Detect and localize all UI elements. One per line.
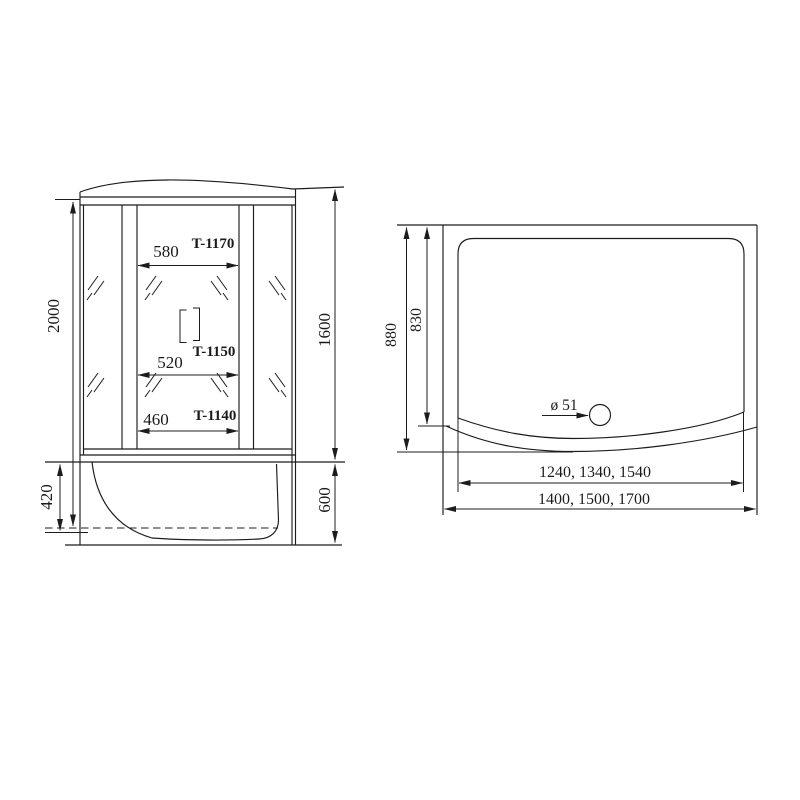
model-label-t1150: T-1150: [193, 344, 236, 360]
dim-inner-widths: 1240, 1340, 1540: [539, 464, 651, 481]
dim-door-width-t1140: 460: [143, 410, 169, 429]
model-label-t1140: T-1140: [194, 408, 237, 424]
dim-inner-depth: 830: [408, 308, 425, 332]
dim-tray-inner-depth: 420: [37, 484, 56, 510]
cabin-outline: [45, 180, 345, 545]
technical-drawing-page: 580 T-1170 520 T-1150 460 T-1140 2000 42…: [0, 0, 800, 800]
top-view: 880 830 ø 51 1240, 1340, 1540 1400, 1500…: [383, 225, 757, 515]
model-label-t1170: T-1170: [192, 236, 235, 252]
door-handle: [180, 308, 200, 343]
dim-body-height: 1600: [315, 313, 334, 347]
dim-tray-height: 600: [315, 487, 334, 513]
glass-hatch-marks: [87, 276, 286, 397]
drain-hole: [590, 405, 611, 426]
dim-outer-depth: 880: [383, 323, 400, 347]
dim-outer-widths: 1400, 1500, 1700: [538, 491, 650, 508]
drain-diameter-label: ø 51: [550, 397, 577, 414]
shower-cabin-dimension-drawing: 580 T-1170 520 T-1150 460 T-1140 2000 42…: [0, 0, 800, 800]
front-view: 580 T-1170 520 T-1150 460 T-1140 2000 42…: [37, 180, 345, 545]
dim-door-width-t1170: 580: [153, 242, 179, 261]
dim-overall-height: 2000: [44, 299, 63, 333]
dim-door-width-t1150: 520: [157, 353, 183, 372]
